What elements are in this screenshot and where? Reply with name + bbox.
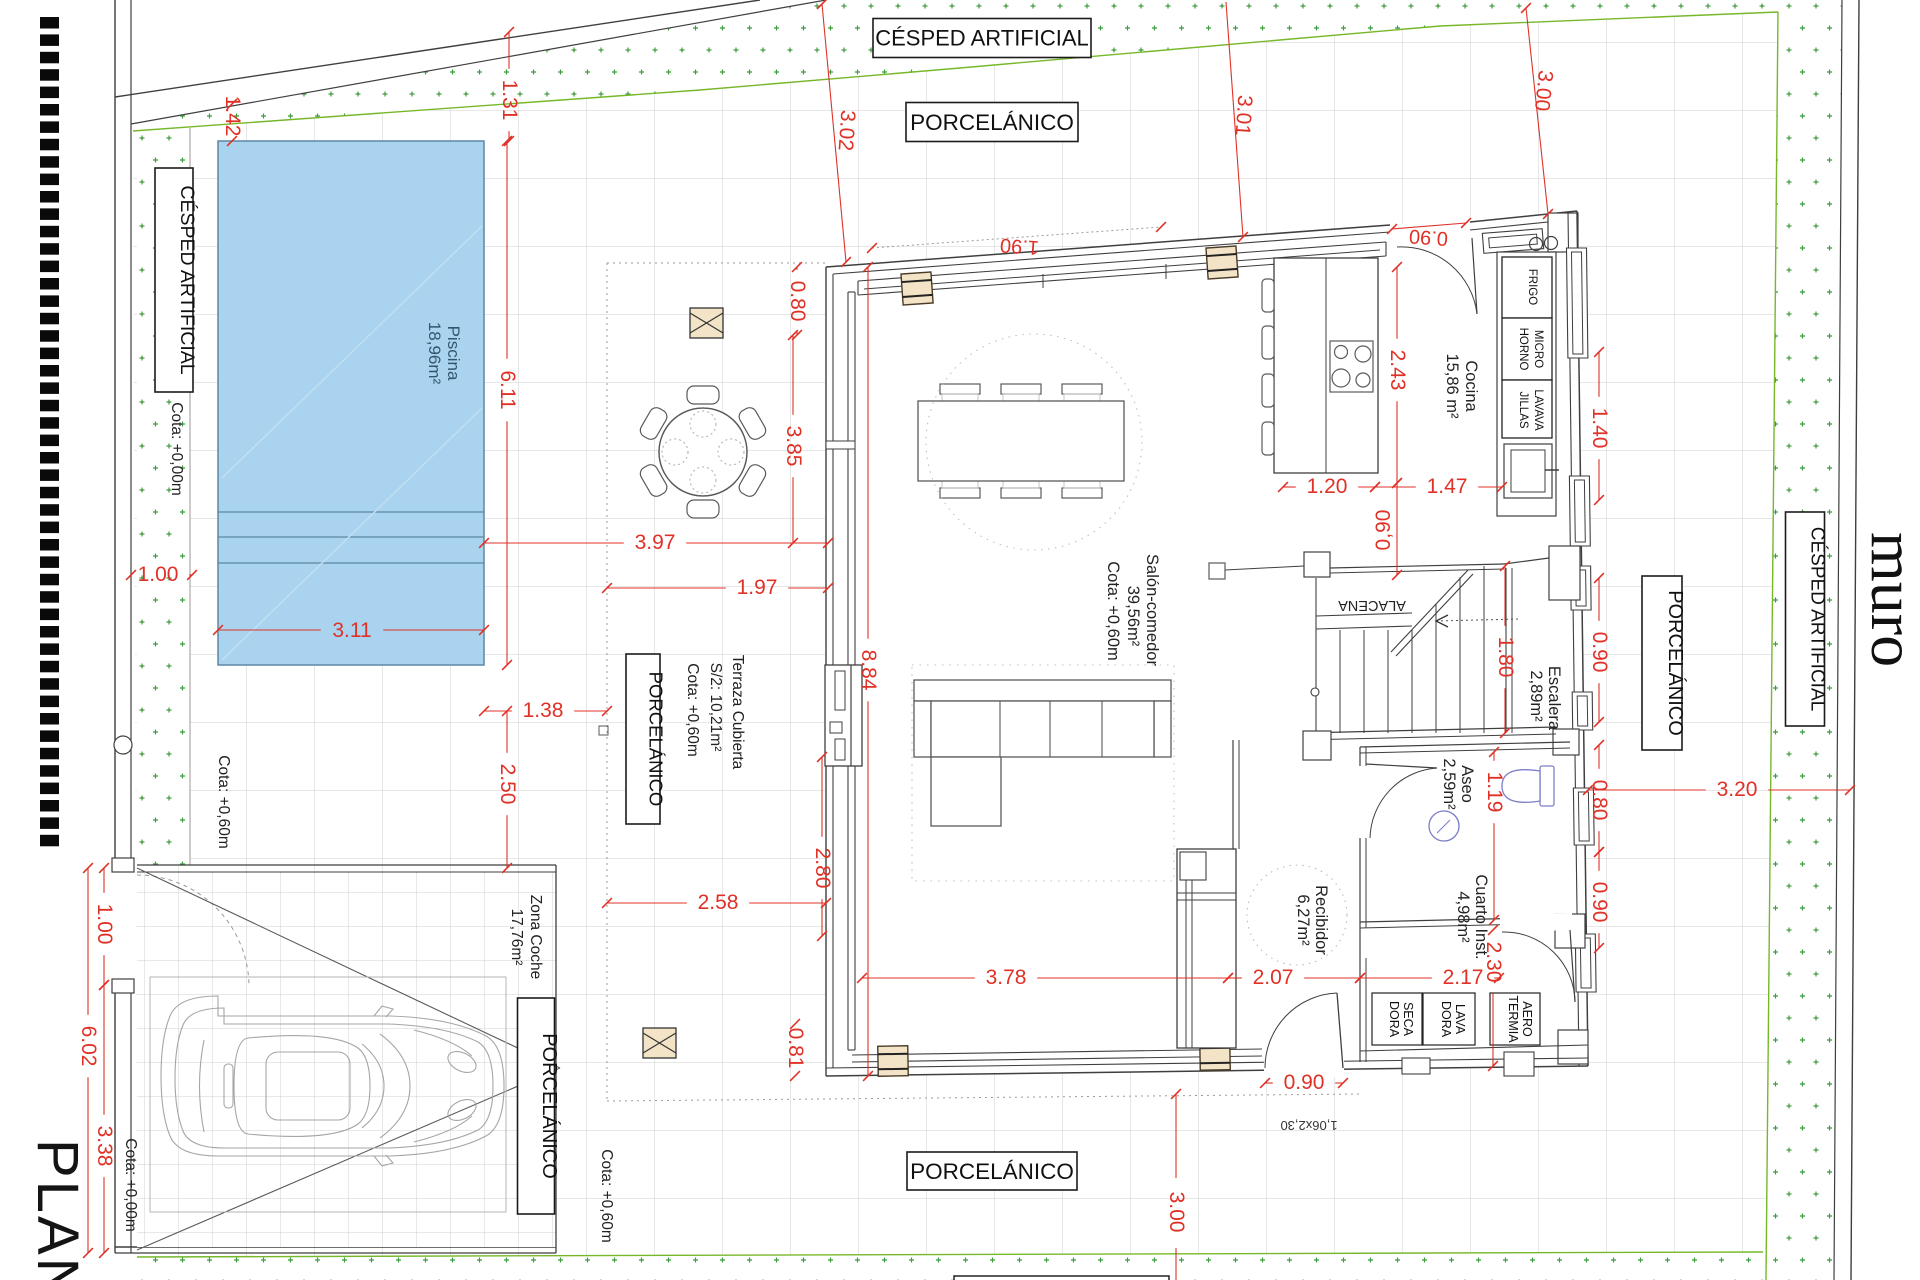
svg-text:2.07: 2.07 [1253, 966, 1294, 989]
svg-text:3.01: 3.01 [1231, 94, 1257, 136]
svg-text:0.90: 0.90 [1588, 882, 1611, 923]
svg-text:Aseo: Aseo [1458, 765, 1476, 803]
svg-text:1.31: 1.31 [498, 80, 521, 121]
svg-text:ALACENA: ALACENA [1338, 597, 1406, 613]
svg-text:Cota: +0,60m: Cota: +0,60m [1104, 561, 1122, 661]
svg-text:Cocina: Cocina [1462, 360, 1480, 412]
svg-text:6.11: 6.11 [496, 370, 519, 409]
svg-text:PORCELÁNICO: PORCELÁNICO [910, 1159, 1074, 1184]
svg-text:3.85: 3.85 [782, 426, 805, 467]
svg-text:17,76m²: 17,76m² [508, 909, 525, 966]
svg-text:0,90: 0,90 [1372, 510, 1395, 551]
svg-text:JILLAS: JILLAS [1517, 391, 1529, 428]
svg-text:1.00: 1.00 [93, 904, 116, 945]
svg-text:39,56m²: 39,56m² [1124, 586, 1142, 647]
svg-text:1.90: 1.90 [999, 234, 1039, 259]
svg-text:1.20: 1.20 [1307, 475, 1348, 498]
svg-text:1,06x2,30: 1,06x2,30 [1280, 1118, 1337, 1133]
svg-text:1.00: 1.00 [138, 563, 179, 586]
svg-text:PORCELÁNICO: PORCELÁNICO [646, 672, 667, 807]
svg-text:CÉSPED ARTIFICIAL: CÉSPED ARTIFICIAL [1807, 527, 1828, 711]
svg-text:1.38: 1.38 [523, 699, 564, 722]
svg-text:0.90: 0.90 [1588, 632, 1611, 673]
svg-text:muro: muro [1858, 532, 1920, 667]
svg-text:3.02: 3.02 [834, 109, 860, 151]
svg-text:TERMIA: TERMIA [1506, 995, 1520, 1043]
svg-text:PORCELÁNICO: PORCELÁNICO [910, 110, 1074, 135]
svg-text:8.84: 8.84 [857, 650, 880, 691]
svg-text:0.80: 0.80 [786, 281, 809, 322]
svg-text:1.19: 1.19 [1483, 772, 1506, 813]
svg-text:SECA: SECA [1401, 1002, 1415, 1037]
svg-text:PORCELÁNICO: PORCELÁNICO [1664, 590, 1687, 736]
svg-text:Zona Coche: Zona Coche [527, 895, 544, 979]
svg-text:S/2: 10,21m²: S/2: 10,21m² [707, 663, 724, 752]
svg-text:DORA: DORA [1439, 1001, 1453, 1038]
svg-text:2.80: 2.80 [811, 848, 834, 889]
svg-text:Salón-comedor: Salón-comedor [1143, 554, 1161, 666]
svg-text:HORNO: HORNO [1517, 328, 1529, 371]
svg-text:1.47: 1.47 [1427, 475, 1468, 498]
svg-text:Cota: +0,60m: Cota: +0,60m [598, 1149, 615, 1242]
svg-text:4,98m²: 4,98m² [1454, 891, 1472, 943]
svg-text:Cota: +0,00m: Cota: +0,00m [168, 402, 185, 495]
svg-text:DORA: DORA [1387, 1001, 1401, 1038]
svg-text:PLANTA: PLANTA [25, 1139, 90, 1280]
svg-text:Cota: +0,60m: Cota: +0,60m [215, 755, 232, 848]
svg-text:3.00: 3.00 [1165, 1192, 1188, 1233]
svg-text:LAVA: LAVA [1453, 1004, 1467, 1035]
svg-text:2.17: 2.17 [1443, 966, 1484, 989]
svg-text:0.81: 0.81 [784, 1028, 807, 1069]
svg-text:1.40: 1.40 [1588, 408, 1611, 449]
svg-text:6,27m²: 6,27m² [1294, 894, 1312, 946]
svg-text:2,89m²: 2,89m² [1527, 670, 1545, 722]
svg-text:15,86 m²: 15,86 m² [1443, 353, 1461, 419]
svg-text:AERO: AERO [1520, 1001, 1534, 1037]
svg-text:MICRO: MICRO [1532, 330, 1544, 368]
svg-text:18,96m²: 18,96m² [425, 322, 444, 385]
svg-text:2.58: 2.58 [698, 891, 739, 914]
svg-text:3.97: 3.97 [635, 531, 676, 554]
svg-text:Cota: +0,00m: Cota: +0,00m [122, 1138, 139, 1231]
svg-text:PORCELÁNICO: PORCELÁNICO [538, 1033, 561, 1179]
svg-text:FRIGO: FRIGO [1526, 269, 1538, 305]
svg-text:CÉSPED ARTIFICIAL: CÉSPED ARTIFICIAL [176, 185, 199, 374]
svg-text:0.90: 0.90 [1408, 225, 1448, 250]
svg-text:1.42: 1.42 [221, 96, 244, 137]
svg-text:1.80: 1.80 [1494, 637, 1517, 678]
svg-text:1.97: 1.97 [737, 576, 778, 599]
svg-text:0.90: 0.90 [1284, 1071, 1325, 1094]
svg-text:Cota: +0,60m: Cota: +0,60m [684, 663, 701, 756]
svg-text:3.20: 3.20 [1717, 778, 1758, 801]
svg-text:3.11: 3.11 [332, 619, 371, 642]
svg-text:2,59m²: 2,59m² [1440, 758, 1458, 810]
svg-text:Recibidor: Recibidor [1312, 885, 1330, 955]
svg-text:Terraza Cubierta: Terraza Cubierta [729, 655, 746, 770]
svg-text:6.02: 6.02 [77, 1026, 100, 1067]
svg-text:LAVAVA: LAVAVA [1532, 389, 1544, 431]
svg-text:2.50: 2.50 [496, 764, 519, 805]
svg-text:Piscina: Piscina [444, 326, 463, 381]
svg-text:3.78: 3.78 [986, 966, 1027, 989]
svg-text:CÉSPED ARTIFICIAL: CÉSPED ARTIFICIAL [875, 26, 1089, 51]
svg-text:3.38: 3.38 [93, 1126, 116, 1167]
svg-text:2.43: 2.43 [1386, 350, 1409, 391]
svg-text:3.00: 3.00 [1530, 69, 1557, 112]
svg-text:Escalera: Escalera [1545, 666, 1563, 731]
